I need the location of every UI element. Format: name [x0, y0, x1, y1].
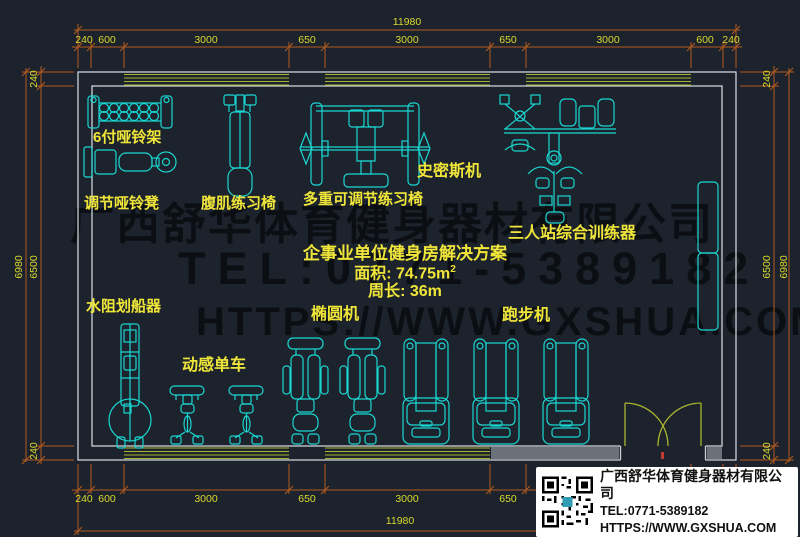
dim-top-total: 11980: [393, 17, 421, 28]
dim-top-seg: 3000: [395, 35, 418, 46]
dim-bottom-seg: 3000: [194, 494, 217, 505]
solution-perimeter: 周长: 36m: [303, 283, 507, 301]
label-multi-bench: 多重可调节练习椅: [303, 192, 423, 207]
door-marker: [661, 452, 664, 459]
wall-cabinet: [698, 182, 718, 330]
ab-trainer-chair: [224, 95, 256, 196]
dim-bottom-seg: 600: [98, 494, 116, 505]
card-url: HTTPS://WWW.GXSHUA.COM: [600, 520, 792, 537]
elliptical-machine: [283, 338, 328, 444]
dim-top-seg: 3000: [194, 35, 217, 46]
dim-right-seg: 240: [762, 442, 773, 460]
dim-top-seg: 650: [499, 35, 517, 46]
label-dumbbell-rack: 6付哑铃架: [93, 130, 161, 145]
dim-left-seg: 240: [29, 70, 40, 88]
dim-top-seg: 600: [98, 35, 116, 46]
dim-top-seg: 600: [696, 35, 714, 46]
label-water-rower: 水阻划船器: [86, 299, 161, 314]
dim-right-total: 6980: [779, 255, 790, 278]
label-smith-machine: 史密斯机: [417, 164, 481, 180]
double-door: [625, 403, 701, 446]
dim-bottom-seg: 650: [298, 494, 316, 505]
three-person-station: [500, 95, 616, 223]
dim-bottom-total: 11980: [386, 516, 414, 527]
dumbbell-rack: [88, 96, 172, 128]
multi-adjustable-bench: [344, 110, 388, 187]
qr-code: [542, 476, 593, 528]
solution-text: 企事业单位健身房解决方案 面积: 74.75m2 周长: 36m: [303, 245, 507, 302]
cad-floorplan: 广西舒华体育健身器材有限公司 TEL:0771-5389182 HTTPS://…: [0, 0, 800, 537]
dim-bottom-seg: 650: [499, 494, 517, 505]
dim-left-total: 6980: [14, 255, 25, 278]
solution-area: 面积: 74.75m2: [303, 264, 507, 284]
label-adjustable-bench: 调节哑铃凳: [84, 196, 159, 211]
card-tel: TEL:0771-5389182: [600, 503, 792, 520]
adjustable-dumbbell-bench: [84, 147, 176, 177]
label-treadmill: 跑步机: [502, 308, 550, 324]
treadmill-machine: [473, 339, 519, 444]
dim-bottom-seg: 240: [75, 494, 93, 505]
treadmill-machine: [403, 339, 449, 444]
elliptical-machine: [340, 338, 385, 444]
dim-top-seg: 650: [298, 35, 316, 46]
treadmill-machine: [543, 339, 589, 444]
label-elliptical: 椭圆机: [311, 307, 359, 323]
label-three-station: 三人站综合训练器: [508, 226, 636, 242]
smith-machine: [300, 103, 430, 185]
dim-top-seg: 240: [75, 35, 93, 46]
label-spin-bike: 动感单车: [182, 358, 246, 374]
card-company-name: 广西舒华体育健身器材有限公司: [600, 468, 792, 503]
solution-title: 企事业单位健身房解决方案: [303, 245, 507, 264]
dim-right-seg: 6500: [762, 255, 773, 278]
spin-bike: [170, 386, 204, 444]
dim-top-seg: 240: [722, 35, 740, 46]
company-info-card: 广西舒华体育健身器材有限公司 TEL:0771-5389182 HTTPS://…: [536, 467, 798, 537]
area-value: 面积: 74.75m: [354, 265, 450, 282]
dim-left-seg: 240: [29, 442, 40, 460]
spin-bike: [229, 386, 263, 444]
label-ab-chair: 腹肌练习椅: [201, 196, 276, 211]
dim-top-seg: 3000: [596, 35, 619, 46]
dim-left-seg: 6500: [29, 255, 40, 278]
water-rower: [109, 324, 151, 448]
dim-right-seg: 240: [762, 70, 773, 88]
area-sup: 2: [450, 264, 456, 275]
dim-bottom-seg: 3000: [395, 494, 418, 505]
